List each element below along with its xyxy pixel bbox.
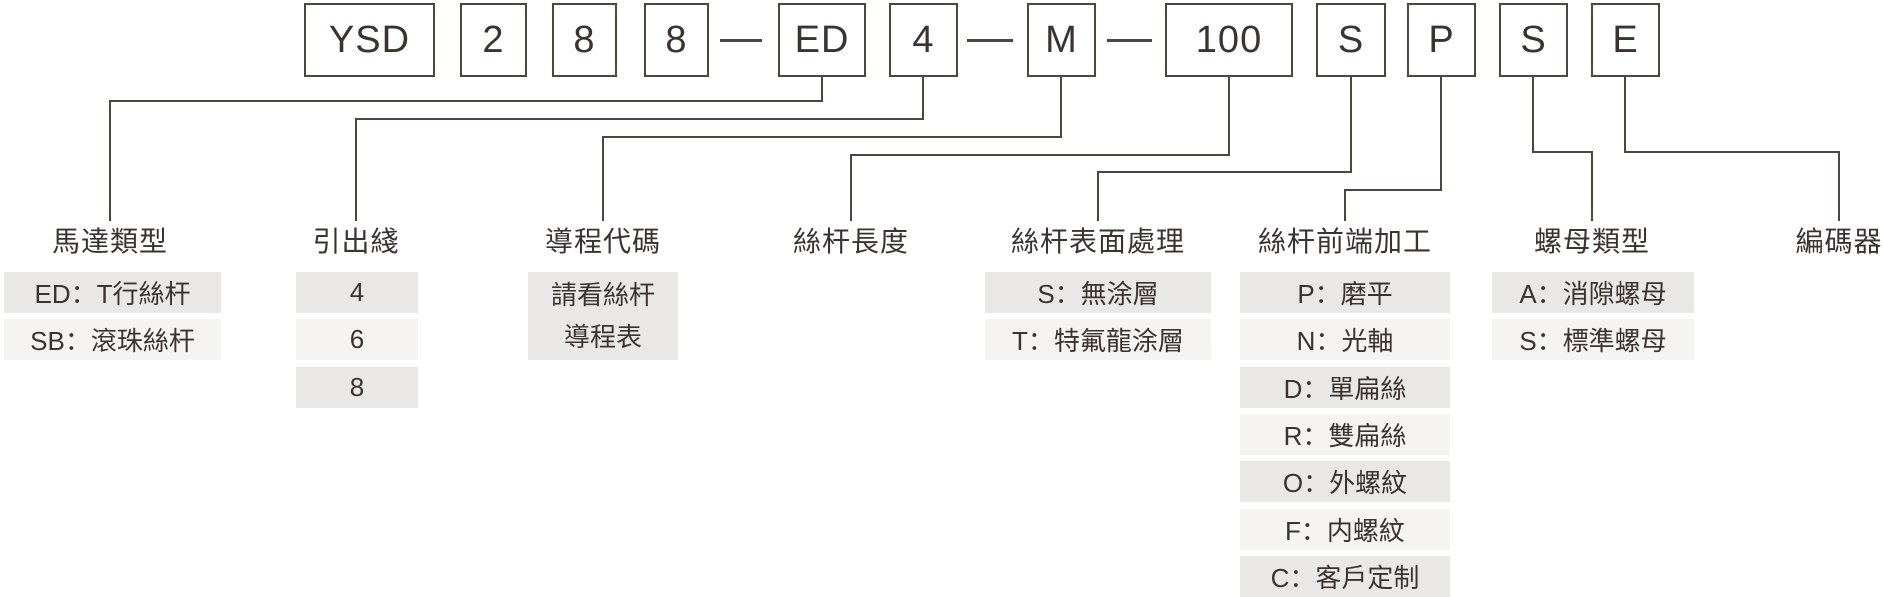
connector-vertical-from-box xyxy=(1060,77,1062,136)
connector-vertical-from-box xyxy=(1440,77,1442,189)
option-row: ED：T行絲杆 xyxy=(4,272,221,313)
option-row: F：内螺紋 xyxy=(1240,509,1450,550)
code-box: 8 xyxy=(644,3,709,77)
connector-horizontal xyxy=(602,136,1062,138)
column-label: 導程代碼 xyxy=(545,224,661,256)
code-box-label: S xyxy=(1338,19,1364,62)
option-row: 6 xyxy=(296,319,418,360)
option-row: 4 xyxy=(296,272,418,313)
connector-vertical-to-label xyxy=(1838,153,1840,221)
column-label: 絲杆表面處理 xyxy=(1011,224,1185,256)
column-label: 編碼器 xyxy=(1795,224,1882,256)
dash-separator xyxy=(720,39,762,42)
option-row: R：雙扁絲 xyxy=(1240,414,1450,455)
code-box-label: ED xyxy=(795,19,850,62)
code-box: S xyxy=(1316,3,1386,77)
connector-vertical-from-box xyxy=(1532,77,1534,151)
code-box: M xyxy=(1027,3,1096,77)
option-row: S：無涂層 xyxy=(985,272,1211,313)
connector-vertical-from-box xyxy=(821,77,823,100)
option-row: T：特氟龍涂層 xyxy=(985,319,1211,360)
code-box: YSD xyxy=(304,3,435,77)
code-box-label: YSD xyxy=(329,19,410,62)
connector-horizontal xyxy=(1532,151,1593,153)
connector-horizontal xyxy=(355,118,924,120)
option-row: 8 xyxy=(296,367,418,408)
code-box-label: S xyxy=(1520,19,1546,62)
code-box: E xyxy=(1591,3,1660,77)
column-label: 螺母類型 xyxy=(1534,224,1650,256)
code-box-label: 8 xyxy=(573,19,595,62)
code-box-label: E xyxy=(1612,19,1638,62)
connector-vertical-from-box xyxy=(922,77,924,118)
connector-horizontal xyxy=(1097,171,1352,173)
connector-vertical-to-label xyxy=(1344,191,1346,221)
option-row: SB：滾珠絲杆 xyxy=(4,319,221,360)
connector-horizontal xyxy=(109,100,823,102)
option-row: O：外螺紋 xyxy=(1240,461,1450,502)
code-box-label: 100 xyxy=(1196,19,1262,62)
code-box-label: M xyxy=(1045,19,1078,62)
code-box: 8 xyxy=(552,3,617,77)
connector-vertical-to-label xyxy=(109,102,111,221)
connector-horizontal xyxy=(1344,189,1442,191)
code-box: P xyxy=(1407,3,1476,77)
connector-vertical-to-label xyxy=(850,156,852,221)
connector-horizontal xyxy=(850,154,1230,156)
option-row: C：客戶定制 xyxy=(1240,556,1450,597)
note-line: 請看絲杆 xyxy=(551,274,655,316)
column-label: 馬達類型 xyxy=(52,224,168,256)
column-label: 絲杆前端加工 xyxy=(1258,224,1432,256)
dash-separator xyxy=(967,39,1013,42)
code-box: 2 xyxy=(460,3,527,77)
note-line: 導程表 xyxy=(564,316,642,358)
connector-vertical-to-label xyxy=(1097,173,1099,221)
code-box-label: 8 xyxy=(665,19,687,62)
code-box: S xyxy=(1499,3,1568,77)
code-box-label: P xyxy=(1428,19,1454,62)
connector-vertical-from-box xyxy=(1350,77,1352,171)
column-label: 引出綫 xyxy=(312,224,399,256)
dash-separator xyxy=(1107,39,1152,42)
connector-horizontal xyxy=(1624,151,1840,153)
connector-vertical-from-box xyxy=(1228,77,1230,154)
option-row: P：磨平 xyxy=(1240,272,1450,313)
option-row: D：單扁絲 xyxy=(1240,367,1450,408)
code-box: ED xyxy=(778,3,866,77)
option-row: N：光軸 xyxy=(1240,319,1450,360)
connector-vertical-to-label xyxy=(1591,153,1593,221)
code-box-label: 4 xyxy=(912,19,934,62)
option-row: A：消隙螺母 xyxy=(1492,272,1694,313)
connector-vertical-to-label xyxy=(355,120,357,221)
ordering-code-diagram: YSD288ED4M100SPSE馬達類型引出綫導程代碼絲杆長度絲杆表面處理絲杆… xyxy=(0,0,1883,597)
code-box: 100 xyxy=(1165,3,1293,77)
code-box-label: 2 xyxy=(482,19,504,62)
option-row: S：標準螺母 xyxy=(1492,319,1694,360)
connector-vertical-from-box xyxy=(1624,77,1626,151)
column-label: 絲杆長度 xyxy=(793,224,909,256)
lead-code-note-block: 請看絲杆導程表 xyxy=(528,272,678,360)
code-box: 4 xyxy=(889,3,958,77)
connector-vertical-to-label xyxy=(602,138,604,221)
